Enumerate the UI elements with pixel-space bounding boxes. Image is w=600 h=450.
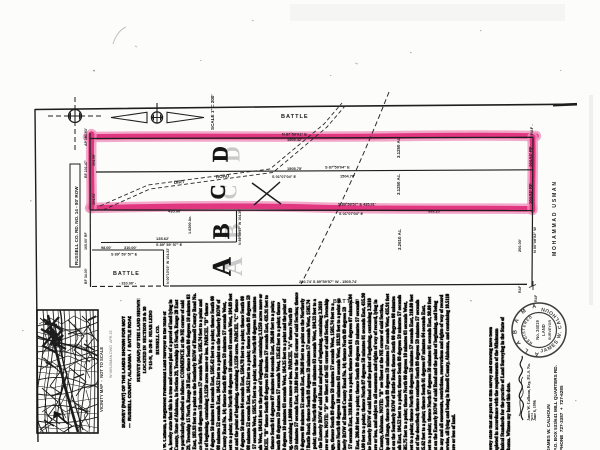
svg-text:REGISTERED: REGISTERED xyxy=(522,315,533,345)
svg-text:No. 24019: No. 24019 xyxy=(535,320,540,340)
svg-text:SURVEYOR: SURVEYOR xyxy=(548,320,552,341)
svg-text:★ A L A B A M A ★: ★ A L A B A M A ★ xyxy=(204,303,539,450)
svg-text:LAND: LAND xyxy=(541,324,546,336)
